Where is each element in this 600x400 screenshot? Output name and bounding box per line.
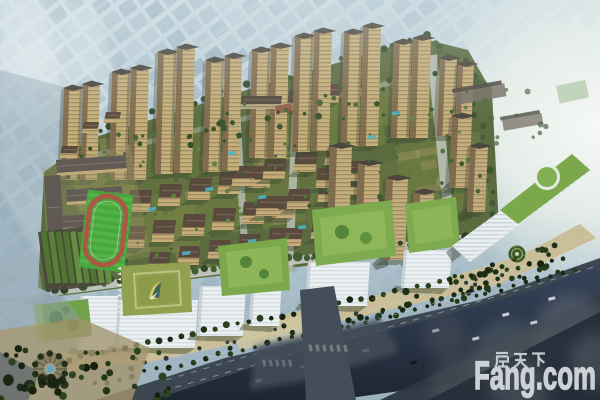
svg-text:Fang.com: Fang.com	[474, 354, 596, 398]
